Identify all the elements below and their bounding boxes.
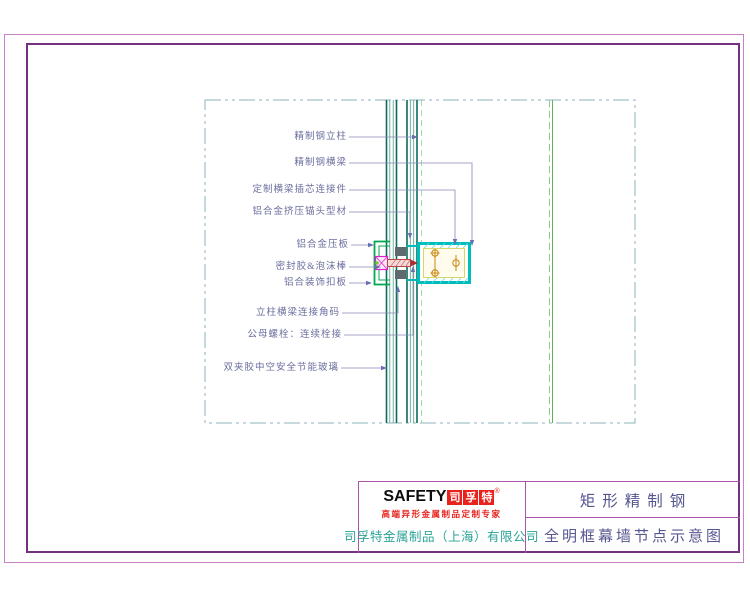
callout-insert-connector: 定制横梁插芯连接件 [252, 184, 347, 196]
callout-steel-column: 精制钢立柱 [294, 131, 347, 143]
registered-mark-icon: ® [494, 488, 499, 495]
callout-bolt-connection: 公母螺栓：连续栓接 [247, 329, 342, 341]
drawing-title-cell: 全明框幕墙节点示意图 [525, 518, 740, 553]
titleblock-company-cell: SAFETY 司 孚 特 ® 高端异形金属制品定制专家 司孚特金属制品（上海）有… [358, 482, 525, 553]
callout-angle-bracket: 立柱横梁连接角码 [256, 307, 340, 319]
logo-char-2: 孚 [463, 490, 478, 505]
callout-steel-beam: 精制钢横梁 [294, 157, 347, 169]
logo-safety-text: SAFETY [383, 488, 446, 506]
callout-trim-plate: 铝合装饰扣板 [284, 277, 347, 289]
callout-sealant-foam: 密封胶&泡沫棒 [276, 261, 347, 273]
brand-tagline: 高端异形金属制品定制专家 [381, 508, 501, 520]
beam-section-box [419, 243, 470, 283]
connector-assembly [375, 242, 419, 285]
callout-glass: 双夹胶中空安全节能玻璃 [223, 362, 339, 374]
callout-anchor-profile: 铝合金挤压锚头型材 [252, 206, 347, 218]
product-name-cell: 矩形精制钢 [525, 482, 740, 517]
company-name: 司孚特金属制品（上海）有限公司 [344, 526, 539, 545]
logo-char-3: 特 [479, 490, 494, 505]
brand-logo: SAFETY 司 孚 特 ® [383, 487, 499, 507]
callout-pressure-plate: 铝合金压板 [296, 239, 349, 251]
logo-char-1: 司 [447, 490, 462, 505]
